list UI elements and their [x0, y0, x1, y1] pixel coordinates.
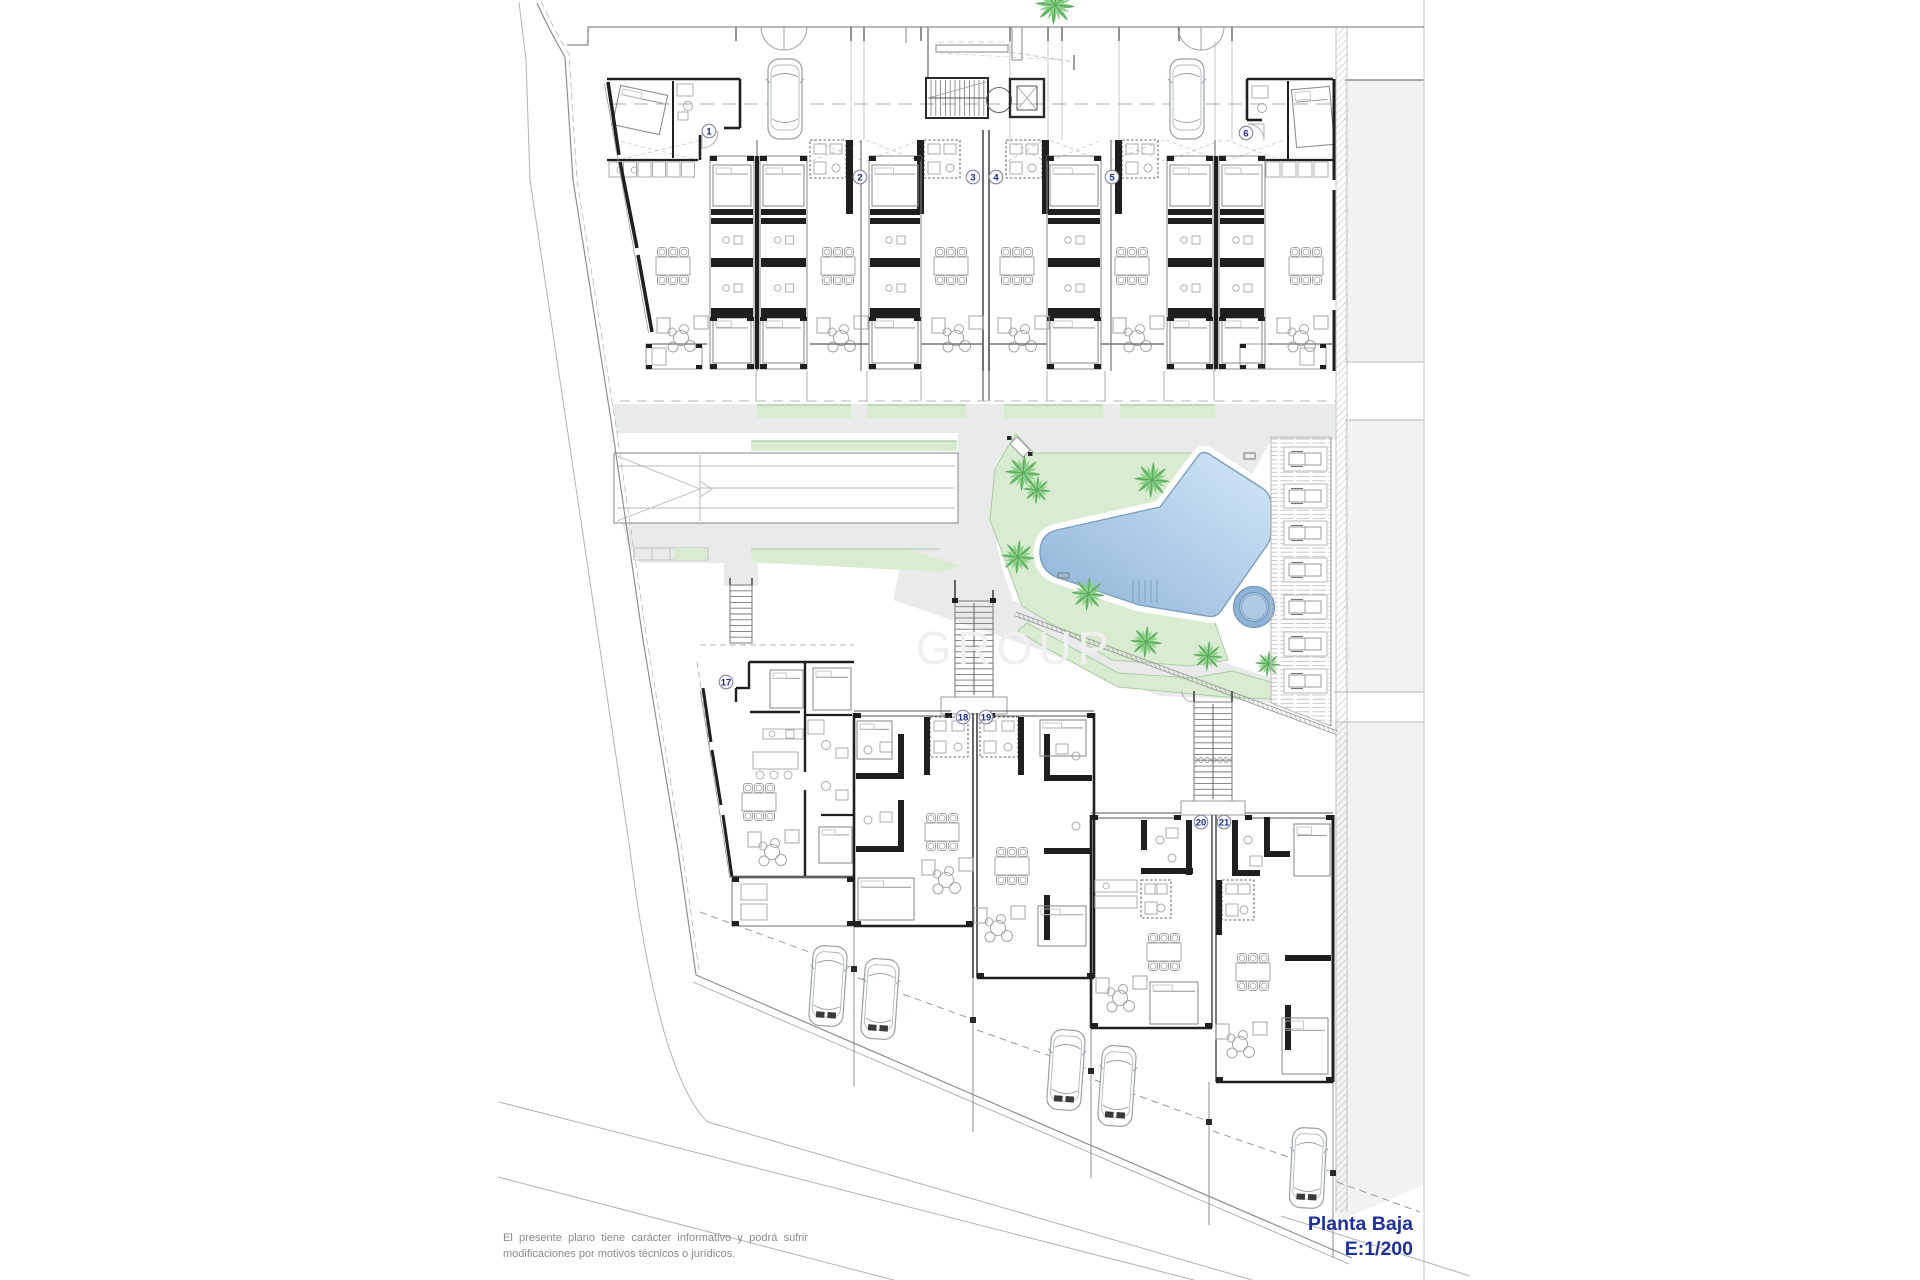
svg-text:5: 5 — [1109, 172, 1115, 183]
svg-text:4: 4 — [993, 172, 999, 183]
svg-text:modificaciones por motivos téc: modificaciones por motivos técnicos o ju… — [503, 1248, 735, 1260]
svg-text:21: 21 — [1219, 817, 1230, 828]
svg-text:19: 19 — [981, 712, 992, 723]
svg-text:17: 17 — [721, 677, 732, 688]
svg-text:20: 20 — [1196, 817, 1207, 828]
svg-text:6: 6 — [1243, 128, 1248, 139]
svg-text:GROUP: GROUP — [916, 622, 1115, 674]
svg-text:E:1/200: E:1/200 — [1345, 1238, 1413, 1260]
svg-text:2: 2 — [857, 172, 862, 183]
svg-text:Planta Baja: Planta Baja — [1308, 1213, 1413, 1235]
svg-text:1: 1 — [706, 126, 712, 137]
svg-text:3: 3 — [970, 172, 975, 183]
svg-text:18: 18 — [958, 712, 969, 723]
svg-text:El presente plano tiene caráct: El presente plano tiene carácter informa… — [503, 1232, 808, 1244]
